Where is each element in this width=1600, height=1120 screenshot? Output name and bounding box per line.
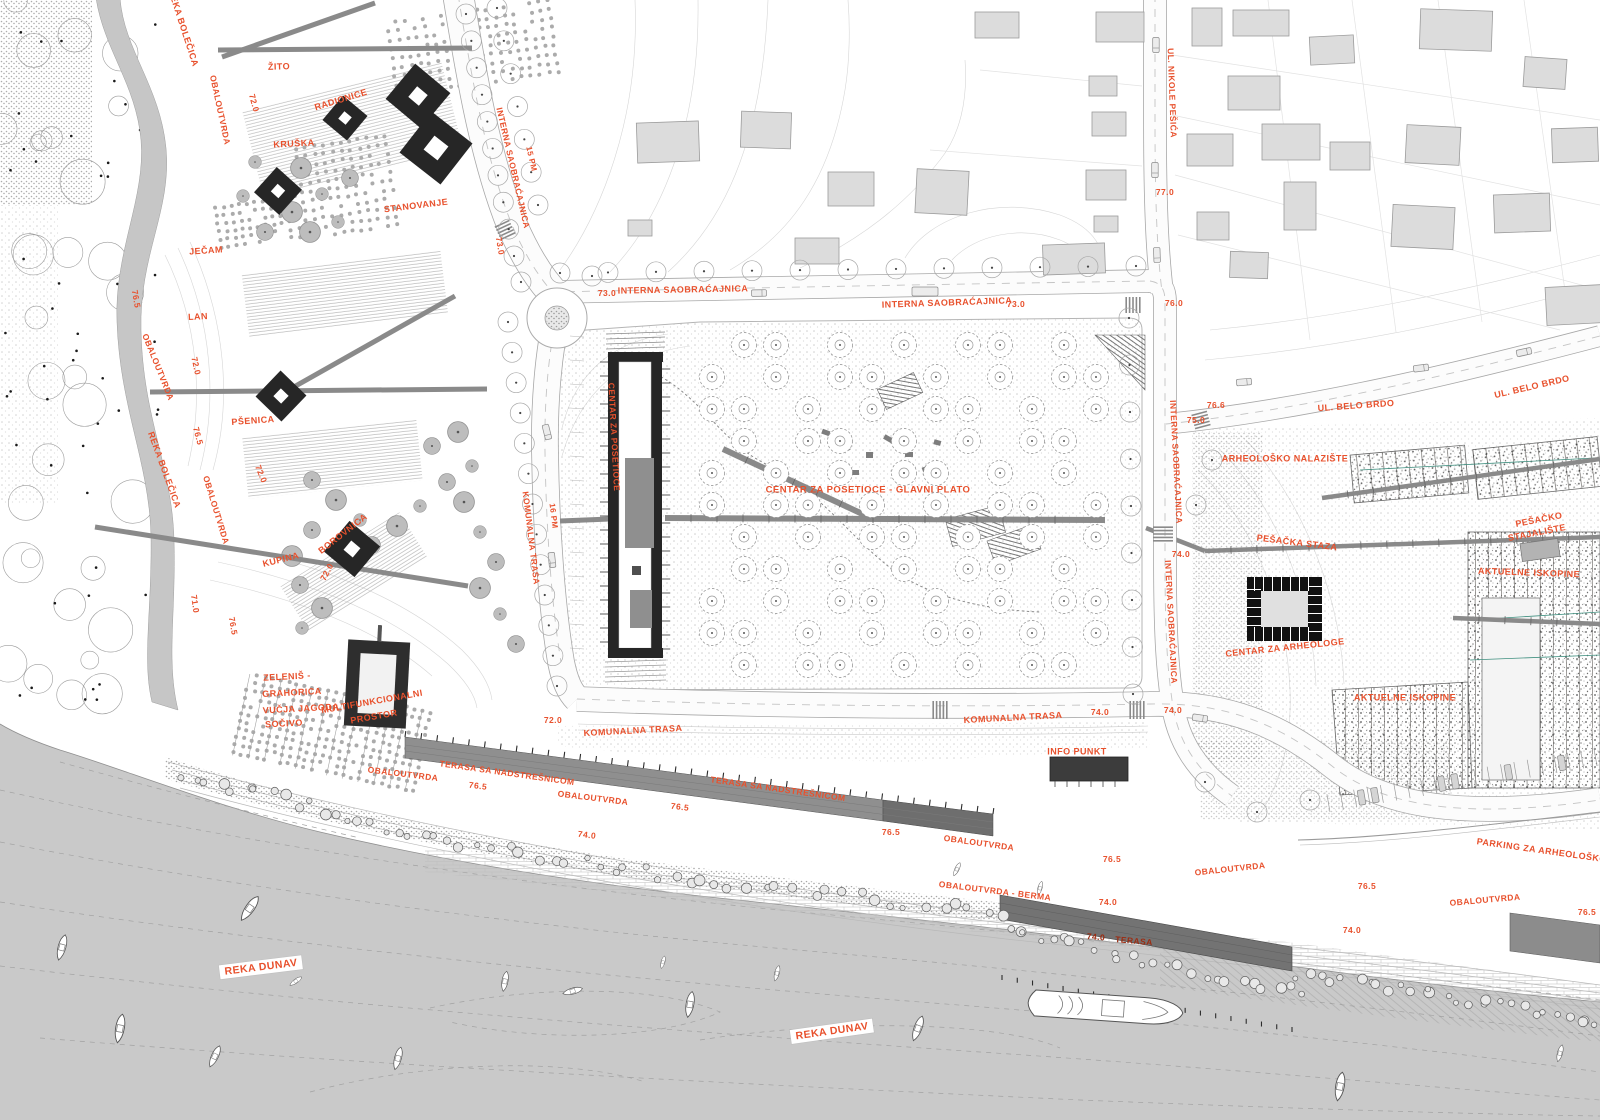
site-plan-drawing: REKA BOLEČICAOBALOUTVRDA72.0ŽITORADIONIC… bbox=[0, 0, 1600, 1120]
quay-block bbox=[1510, 913, 1600, 963]
plan-canvas bbox=[0, 0, 1600, 1120]
bolecica-creek bbox=[96, 0, 178, 710]
archaeologists-center-building bbox=[1254, 584, 1315, 634]
visitor-center-building bbox=[600, 332, 670, 682]
bus bbox=[912, 287, 938, 296]
multifunctional-space bbox=[344, 623, 411, 728]
roundabout bbox=[527, 288, 587, 348]
info-punkt-building bbox=[1050, 757, 1128, 781]
excavation-trench bbox=[1468, 532, 1600, 788]
